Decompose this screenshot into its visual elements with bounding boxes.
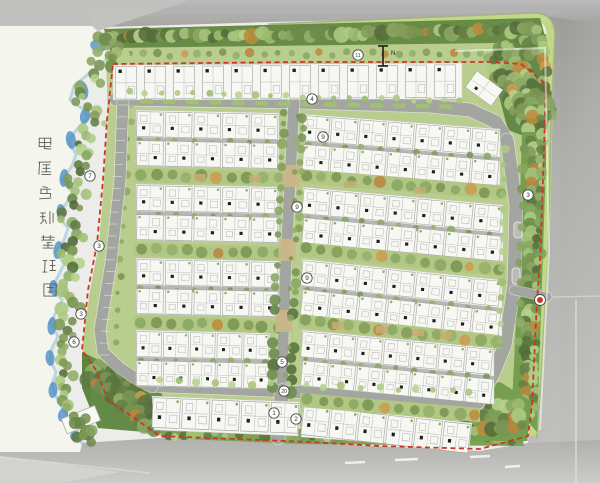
svg-text:3: 3 — [79, 311, 83, 318]
svg-text:4: 4 — [310, 96, 314, 103]
svg-text:9: 9 — [321, 134, 325, 141]
svg-text:20: 20 — [281, 389, 287, 395]
svg-text:5: 5 — [280, 359, 284, 366]
svg-text:7: 7 — [88, 173, 92, 180]
svg-text:11: 11 — [355, 53, 360, 59]
svg-text:3: 3 — [97, 243, 101, 250]
svg-text:9: 9 — [305, 275, 309, 282]
svg-text:6: 6 — [72, 339, 76, 346]
svg-text:3: 3 — [526, 192, 530, 199]
svg-text:2: 2 — [294, 416, 298, 423]
svg-text:9: 9 — [295, 204, 299, 211]
svg-text:1: 1 — [272, 410, 276, 417]
svg-text:N: N — [391, 51, 395, 57]
